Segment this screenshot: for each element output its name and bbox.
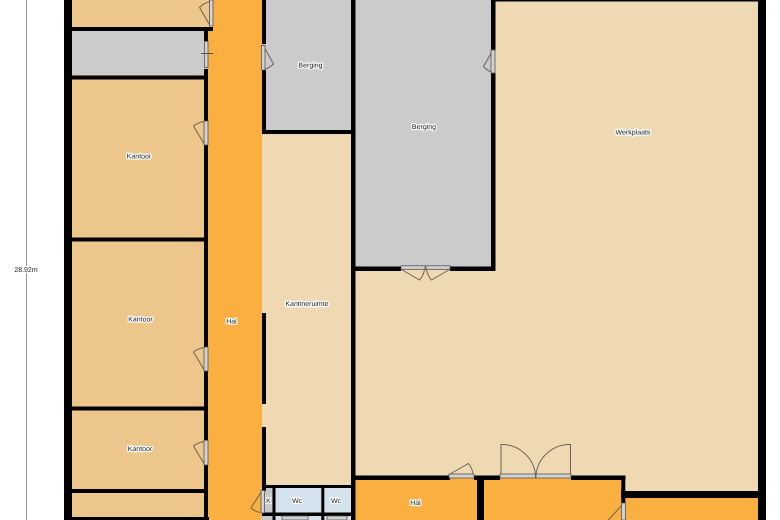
svg-text:K: K xyxy=(266,498,271,505)
svg-text:Hal: Hal xyxy=(226,318,237,326)
svg-text:Kantineruimte: Kantineruimte xyxy=(285,300,328,308)
svg-text:Berging: Berging xyxy=(412,123,436,131)
svg-text:Wc: Wc xyxy=(292,498,303,505)
svg-text:Werkplaats: Werkplaats xyxy=(616,129,651,137)
svg-text:Hal: Hal xyxy=(410,499,421,507)
svg-text:Kantoor: Kantoor xyxy=(128,446,153,453)
svg-text:Kantoor: Kantoor xyxy=(127,154,152,161)
svg-text:Kantoor: Kantoor xyxy=(128,317,153,324)
svg-text:28.92m: 28.92m xyxy=(14,267,38,274)
svg-text:Wc: Wc xyxy=(331,498,342,505)
svg-text:Berging: Berging xyxy=(298,62,322,70)
